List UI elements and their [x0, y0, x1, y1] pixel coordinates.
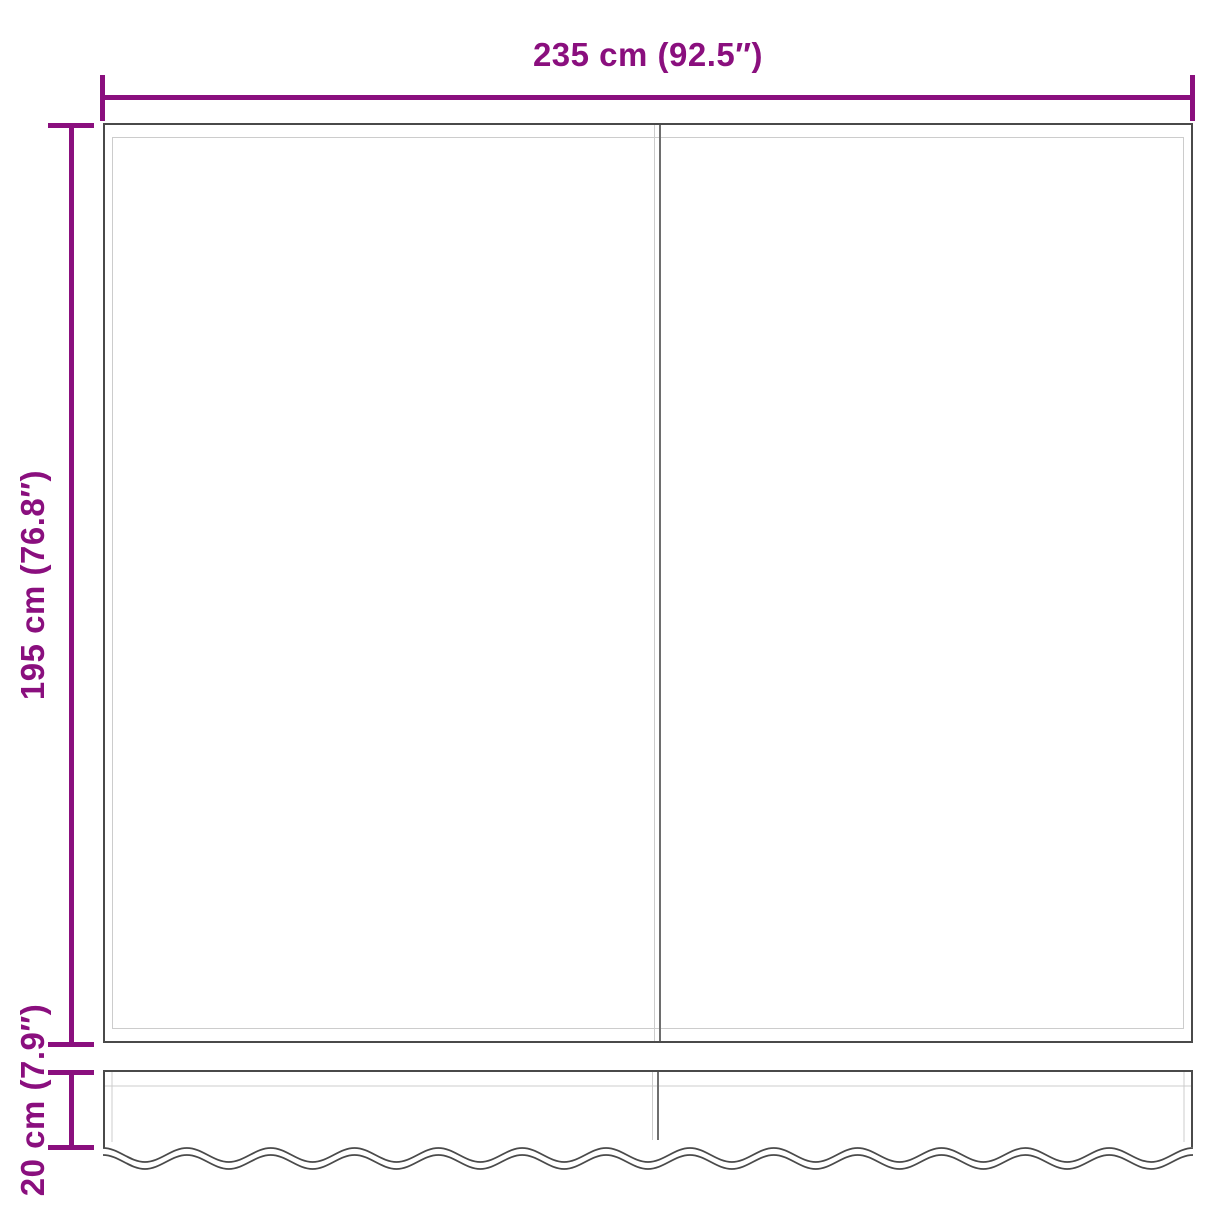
- valance-height-dimension-label: 20 cm (7.9″): [11, 950, 55, 1214]
- width-dimension-tick-right: [1190, 75, 1195, 121]
- height-dimension-line: [69, 125, 74, 1045]
- height-dimension-tick-top: [48, 123, 94, 128]
- awning-fabric-panel: [103, 123, 1193, 1043]
- valance-height-dimension-tick-bottom: [48, 1145, 94, 1150]
- valance-strip: [103, 1070, 1193, 1176]
- width-dimension-tick-left: [100, 75, 105, 121]
- width-dimension-label: 235 cm (92.5″): [103, 36, 1193, 74]
- panel-stitch-line: [112, 137, 1184, 1029]
- valance-height-dimension-line: [69, 1073, 74, 1148]
- panel-center-seam-light: [654, 125, 655, 1041]
- valance-height-dimension-tick-top: [48, 1070, 94, 1075]
- panel-center-seam: [659, 125, 661, 1041]
- width-dimension-line: [103, 95, 1193, 100]
- dimension-diagram: 235 cm (92.5″) 195 cm (76.8″) 20 cm (7.9…: [0, 0, 1214, 1214]
- height-dimension-label: 195 cm (76.8″): [11, 435, 55, 735]
